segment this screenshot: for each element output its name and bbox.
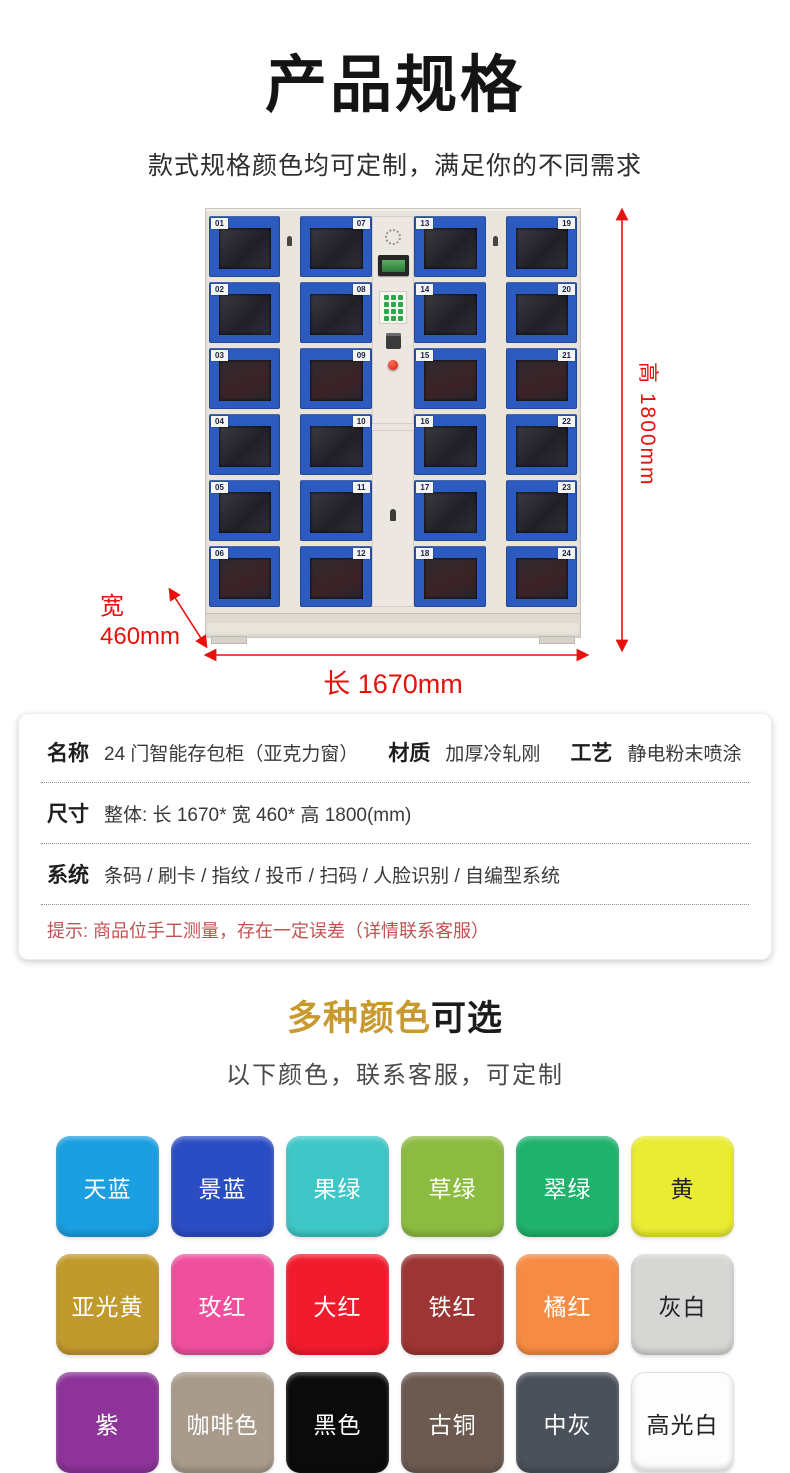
color-swatch: 紫	[56, 1372, 159, 1473]
spec-note: 提示: 商品位手工测量，存在一定误差（详情联系客服）	[41, 905, 749, 949]
spec-pair: 材质加厚冷轧刚	[388, 737, 540, 767]
color-swatch: 果绿	[286, 1136, 389, 1237]
spec-pair: 系统条码 / 刷卡 / 指纹 / 投币 / 扫码 / 人脸识别 / 自编型系统	[47, 859, 560, 889]
length-dimension-label: 长 1670mm	[205, 662, 581, 701]
spec-row: 尺寸整体: 长 1670* 宽 460* 高 1800(mm)	[41, 783, 749, 844]
color-swatch: 翠绿	[516, 1136, 619, 1237]
color-swatch: 黑色	[286, 1372, 389, 1473]
spec-label: 尺寸	[47, 798, 89, 828]
spec-table: 名称24 门智能存包柜（亚克力窗）材质加厚冷轧刚工艺静电粉末喷涂尺寸整体: 长 …	[18, 713, 772, 960]
page-title: 产品规格	[0, 34, 790, 124]
page-subtitle: 款式规格颜色均可定制，满足你的不同需求	[0, 146, 790, 182]
color-swatch: 大红	[286, 1254, 389, 1355]
colors-heading: 多种颜色可选	[0, 990, 790, 1041]
color-swatch: 黄	[631, 1136, 734, 1237]
colors-section: 多种颜色可选 以下颜色，联系客服，可定制 天蓝景蓝果绿草绿翠绿黄亚光黄玫红大红铁…	[0, 990, 790, 1473]
color-swatch: 铁红	[401, 1254, 504, 1355]
spec-pair: 尺寸整体: 长 1670* 宽 460* 高 1800(mm)	[47, 798, 411, 828]
spec-value: 加厚冷轧刚	[445, 739, 540, 766]
spec-label: 名称	[47, 737, 89, 767]
color-swatch: 中灰	[516, 1372, 619, 1473]
spec-row: 系统条码 / 刷卡 / 指纹 / 投币 / 扫码 / 人脸识别 / 自编型系统	[41, 844, 749, 905]
color-swatch: 亚光黄	[56, 1254, 159, 1355]
spec-label: 工艺	[570, 737, 612, 767]
spec-value: 静电粉末喷涂	[627, 739, 741, 766]
color-swatch: 天蓝	[56, 1136, 159, 1237]
colors-heading-rest: 可选	[431, 999, 503, 1038]
height-dimension-label: 高 1800mm	[634, 362, 664, 487]
spec-rows: 名称24 门智能存包柜（亚克力窗）材质加厚冷轧刚工艺静电粉末喷涂尺寸整体: 长 …	[41, 722, 749, 905]
color-swatch: 草绿	[401, 1136, 504, 1237]
color-swatch: 高光白	[631, 1372, 734, 1473]
width-dimension-cn: 宽	[100, 592, 180, 622]
colors-heading-highlight: 多种颜色	[287, 999, 431, 1038]
spec-label: 系统	[47, 859, 89, 889]
color-swatch: 橘红	[516, 1254, 619, 1355]
spec-pair: 名称24 门智能存包柜（亚克力窗）	[47, 737, 358, 767]
color-swatch: 咖啡色	[171, 1372, 274, 1473]
page-header: 产品规格 款式规格颜色均可定制，满足你的不同需求	[0, 34, 790, 182]
color-swatch: 景蓝	[171, 1136, 274, 1237]
color-swatch: 古铜	[401, 1372, 504, 1473]
color-swatch: 玫红	[171, 1254, 274, 1355]
product-figure: 0102030405060708091011121314151617181920…	[0, 196, 790, 701]
spec-value: 24 门智能存包柜（亚克力窗）	[104, 739, 358, 766]
spec-pair: 工艺静电粉末喷涂	[570, 737, 741, 767]
width-dimension-value: 460mm	[100, 622, 180, 652]
spec-row: 名称24 门智能存包柜（亚克力窗）材质加厚冷轧刚工艺静电粉末喷涂	[41, 722, 749, 783]
spec-label: 材质	[388, 737, 430, 767]
width-dimension-label: 宽 460mm	[100, 592, 180, 652]
colors-subheading: 以下颜色，联系客服，可定制	[0, 1055, 790, 1090]
color-swatch-grid: 天蓝景蓝果绿草绿翠绿黄亚光黄玫红大红铁红橘红灰白紫咖啡色黑色古铜中灰高光白	[55, 1136, 735, 1473]
color-swatch: 灰白	[631, 1254, 734, 1355]
spec-value: 条码 / 刷卡 / 指纹 / 投币 / 扫码 / 人脸识别 / 自编型系统	[104, 861, 560, 888]
spec-value: 整体: 长 1670* 宽 460* 高 1800(mm)	[104, 800, 411, 827]
